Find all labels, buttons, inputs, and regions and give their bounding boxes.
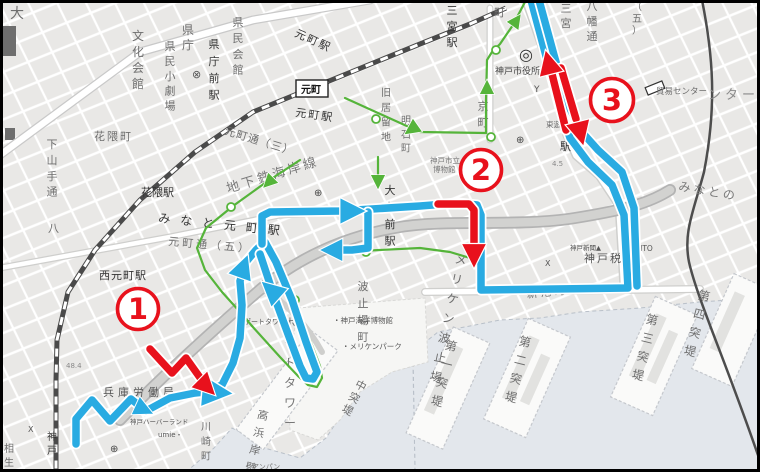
map-label: 4.5 xyxy=(552,160,563,168)
map-viewport[interactable]: 大文化会館県民小劇場県庁⊗県庁前駅県民会館花隈町下山手通八花隈駅元町駅元町元町駅… xyxy=(0,0,760,472)
map-label: 花隈駅 xyxy=(141,186,174,199)
map-label: ⊕ xyxy=(516,135,524,146)
map-label: 博物館 xyxy=(433,164,456,174)
map-label: X xyxy=(545,259,551,268)
map-label: 県庁 xyxy=(182,23,194,52)
map-label: 神戸新聞▲ xyxy=(570,243,601,252)
map-label: ◎ xyxy=(519,45,533,64)
map-label: X xyxy=(28,425,34,434)
map-label: umie・ xyxy=(158,431,183,439)
map-label: ⊕ xyxy=(110,444,118,455)
building-block xyxy=(3,26,16,56)
map-label: 大 xyxy=(10,6,24,22)
green-route-node xyxy=(227,203,235,211)
map-label: 西元町駅 xyxy=(99,269,147,282)
green-route-node xyxy=(492,46,500,54)
map-label: 元町 xyxy=(301,84,321,96)
map-label: 貿易センター xyxy=(656,86,707,97)
map-canvas[interactable]: 大文化会館県民小劇場県庁⊗県庁前駅県民会館花隈町下山手通八花隈駅元町駅元町元町駅… xyxy=(0,0,760,472)
map-label: （五） xyxy=(632,1,642,37)
map-label: 花隈町 xyxy=(94,130,133,143)
route-marker-number: 1 xyxy=(128,292,148,326)
map-label: 川崎町 xyxy=(201,422,211,463)
map-label: 八 xyxy=(48,222,59,235)
route-marker-2: 2 xyxy=(461,150,502,191)
map-label: ・メリケンパーク xyxy=(342,342,402,351)
map-label: 三宮駅 xyxy=(447,4,458,49)
map-label: 神戸市立 xyxy=(430,155,460,165)
route-marker-number: 2 xyxy=(471,153,491,187)
map-label: 神戸市役所 xyxy=(495,65,540,77)
route-marker-3: 3 xyxy=(591,79,634,122)
route-marker-number: 3 xyxy=(602,83,622,117)
building-block xyxy=(5,128,15,140)
map-label: 神戸ハーバーランド xyxy=(130,417,188,426)
route-marker-1: 1 xyxy=(118,289,159,330)
map-label: 県民小劇場 xyxy=(165,40,176,113)
map-label: ・神戸海洋博物館 xyxy=(333,315,393,325)
green-route-node xyxy=(372,115,380,123)
map-label: アンパン xyxy=(252,463,280,471)
map-label: 48.4 xyxy=(66,362,82,370)
map-label: ⊗ xyxy=(192,68,201,81)
map-label: 三宮 xyxy=(561,2,572,30)
map-label: ⊕ xyxy=(314,188,322,199)
map-label: Y xyxy=(533,85,540,95)
map-label: ンター xyxy=(708,88,759,103)
green-route-node xyxy=(487,133,495,141)
map-label: 町 xyxy=(494,6,505,19)
map-label: 相生町 xyxy=(4,442,14,472)
map-label: 八幡通 xyxy=(587,0,598,43)
